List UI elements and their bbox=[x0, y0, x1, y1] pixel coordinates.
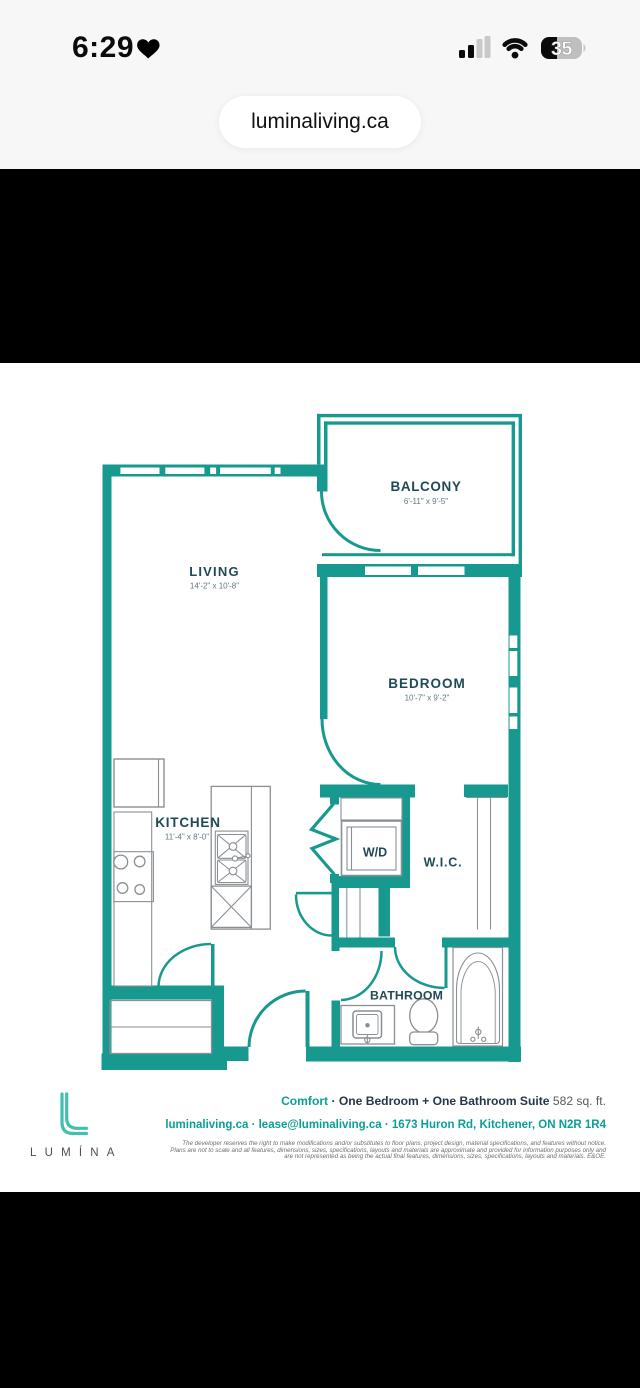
svg-text:LIVING: LIVING bbox=[189, 564, 240, 579]
svg-text:14'-2" x 10'-8": 14'-2" x 10'-8" bbox=[190, 582, 239, 591]
svg-text:LUMÍNA: LUMÍNA bbox=[30, 1146, 123, 1159]
svg-text:BATHROOM: BATHROOM bbox=[370, 989, 443, 1003]
svg-text:11'-4" x 8'-0": 11'-4" x 8'-0" bbox=[165, 833, 209, 842]
svg-text:6'-11" x 9'-5": 6'-11" x 9'-5" bbox=[404, 497, 448, 506]
svg-text:KITCHEN: KITCHEN bbox=[155, 815, 221, 830]
svg-text:W/D: W/D bbox=[363, 846, 387, 860]
svg-text:BEDROOM: BEDROOM bbox=[388, 676, 466, 691]
svg-text:10'-7" x 9'-2": 10'-7" x 9'-2" bbox=[405, 694, 450, 703]
svg-text:W.I.C.: W.I.C. bbox=[424, 856, 463, 870]
svg-text:BALCONY: BALCONY bbox=[391, 479, 462, 494]
